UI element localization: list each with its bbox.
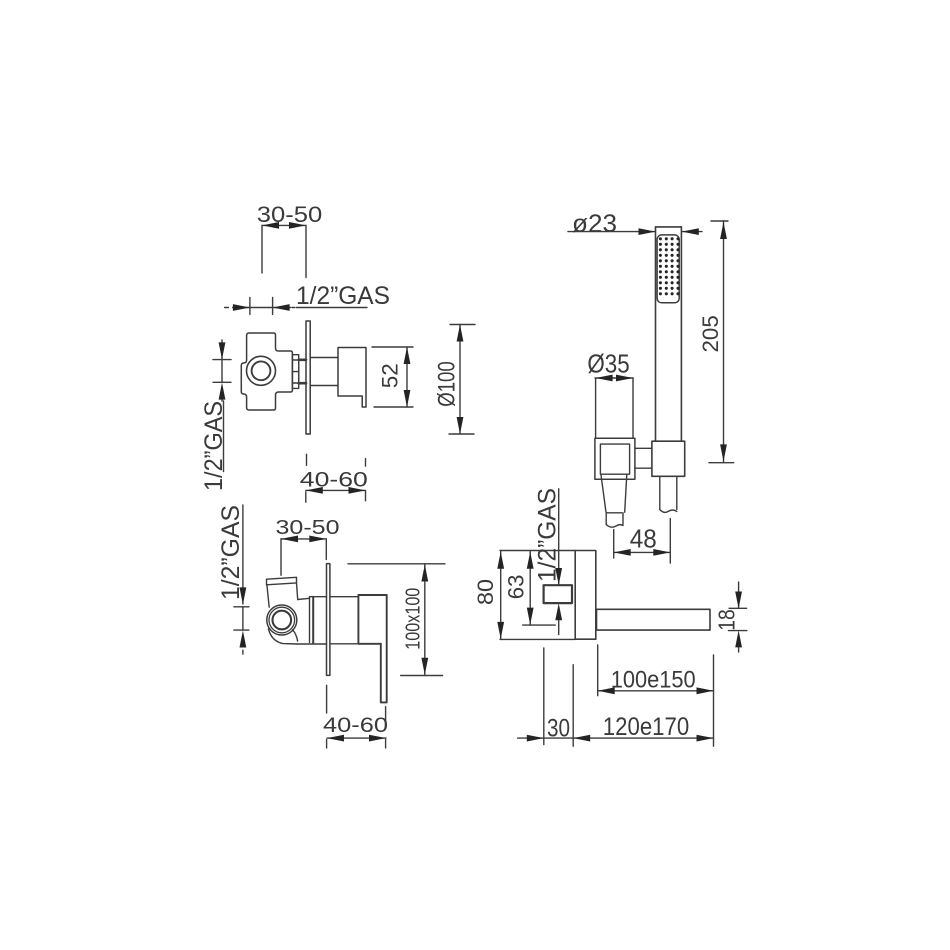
svg-text:40-60: 40-60	[323, 714, 388, 737]
svg-text:205: 205	[698, 315, 723, 352]
svg-text:1/2”GAS: 1/2”GAS	[534, 488, 562, 582]
svg-text:100x100: 100x100	[403, 588, 425, 650]
svg-text:30-50: 30-50	[257, 202, 323, 227]
svg-text:1/2”GAS: 1/2”GAS	[296, 282, 390, 310]
svg-text:30: 30	[547, 715, 570, 743]
svg-text:ø23: ø23	[572, 210, 617, 238]
svg-text:63: 63	[504, 575, 529, 600]
svg-text:48: 48	[630, 524, 657, 554]
svg-text:18: 18	[714, 609, 740, 631]
svg-text:Ø35: Ø35	[587, 349, 629, 379]
svg-text:30-50: 30-50	[276, 517, 340, 539]
svg-text:52: 52	[378, 363, 403, 388]
svg-text:Ø100: Ø100	[434, 361, 461, 407]
svg-text:100e150: 100e150	[611, 667, 696, 694]
svg-text:1/2”GAS: 1/2”GAS	[200, 401, 228, 491]
svg-text:1/2”GAS: 1/2”GAS	[217, 505, 245, 600]
svg-text:120e170: 120e170	[603, 713, 689, 741]
svg-text:40-60: 40-60	[300, 468, 368, 492]
svg-text:80: 80	[473, 579, 498, 605]
